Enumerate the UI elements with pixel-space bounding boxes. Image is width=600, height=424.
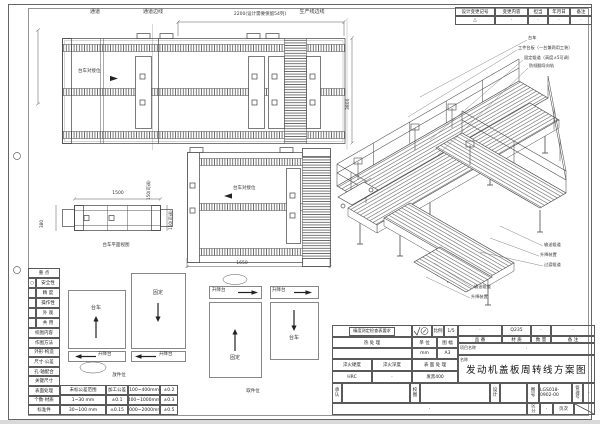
check-item: 共 用 bbox=[36, 318, 60, 328]
trolley-view-caption: 台车平面视图 bbox=[88, 244, 144, 249]
surface-treatment-label: 表 面 处 理 bbox=[412, 359, 458, 371]
trolley-side-view bbox=[56, 198, 173, 232]
tolerance-cell: 1~30 mm bbox=[60, 395, 106, 405]
project-name-label: 项目名称 bbox=[460, 345, 476, 351]
revision-header: 年月日 bbox=[548, 7, 570, 16]
revision-header: 担当 bbox=[528, 7, 548, 16]
tolerance-cell: ±0.2 bbox=[160, 385, 178, 395]
iso-view bbox=[337, 40, 566, 305]
check-mark-empty bbox=[28, 308, 36, 318]
tolerance-cell: 1000~2000mm bbox=[128, 405, 160, 415]
callout-trolley: 台车 bbox=[528, 36, 536, 41]
check-item: 个数·材质 bbox=[28, 396, 60, 406]
dim-380: 380 bbox=[40, 204, 45, 228]
callout-lifter-2: 升降装置 bbox=[471, 295, 488, 300]
note-cell: 精度测定检查表要求 bbox=[332, 325, 412, 337]
dim-3800: 3800 bbox=[347, 70, 352, 110]
flow-left-lift1-label: 升降台 bbox=[98, 353, 112, 358]
tolerance-cell: 400~1000mm bbox=[128, 395, 160, 405]
scale-value: 1/5 bbox=[444, 325, 458, 337]
heat-treatment-value bbox=[332, 348, 412, 359]
drawing-title: 发动机盖板周转线方案图 bbox=[466, 362, 587, 376]
tolerance-cell: ±0.5 bbox=[160, 405, 178, 415]
flow-right-trolley-label: 台车 bbox=[284, 336, 304, 342]
sheet-size-label: 图 幅 bbox=[437, 337, 458, 348]
approve-signature bbox=[342, 383, 410, 403]
check-mark-empty bbox=[28, 318, 36, 328]
drawing-name-label: 名称 bbox=[460, 357, 468, 363]
quench-depth-value: · bbox=[372, 371, 412, 383]
check-mark: ○ bbox=[28, 278, 36, 288]
tolerance-cell: ±0.15 bbox=[106, 405, 128, 415]
unit-label: 单 位 bbox=[412, 337, 437, 348]
label-dock-2: 台车对接位 bbox=[233, 187, 269, 192]
dock-arrow-1 bbox=[110, 76, 118, 81]
title-block: 精度测定检查表要求 比例 1/5 热 处 理 单 位 图 幅 mm A3 淬火硬… bbox=[332, 325, 595, 415]
callout-conveyor-1: 输送辊道 bbox=[544, 243, 561, 248]
check-label: 校图 bbox=[410, 383, 420, 403]
tolerance-table: 未标公差范围 加工公差 100~400mm ±0.2 1~30 mm ±0.1 … bbox=[60, 385, 178, 415]
class-label: 区分 bbox=[527, 403, 540, 415]
remark-value: · bbox=[551, 325, 595, 336]
callout-workpiece-plate: 工件台板（一台兼两用工装） bbox=[518, 46, 572, 51]
check-item: 安全性 bbox=[36, 278, 60, 288]
check-item: 关键尺寸 bbox=[28, 376, 60, 386]
manage-no-label: 管理号 bbox=[572, 383, 583, 403]
revision-table: 设计变更记号 变更内容 担当 年月日 备注 △ · · · · bbox=[455, 7, 592, 25]
heat-treatment-label: 热 处 理 bbox=[332, 337, 412, 348]
manage-no-value: · bbox=[583, 383, 595, 403]
scale-label: 比例 bbox=[432, 325, 444, 337]
label-passage-edge: 通道边线 bbox=[135, 10, 171, 16]
quantity-label: 数 量 bbox=[531, 336, 551, 343]
tolerance-cell: 加工公差 bbox=[106, 385, 128, 395]
flow-left-fixed-label: 固定 bbox=[148, 291, 168, 297]
tolerance-cell: ±0.1 bbox=[106, 395, 128, 405]
page-diagonal-cell bbox=[574, 403, 595, 415]
dim-150-plan: 150(可调) bbox=[147, 172, 152, 200]
footer-note-cell: · bbox=[332, 403, 527, 415]
flow-right-lift2-label: 升降台 bbox=[272, 289, 286, 294]
revision-cell: △ bbox=[455, 16, 495, 25]
check-item: 作图方法 bbox=[28, 338, 60, 348]
flow-left-lift2-label: 升降台 bbox=[159, 353, 173, 358]
check-signature bbox=[420, 383, 490, 403]
check-item: 孔·轴配合 bbox=[28, 367, 60, 377]
design-label: 设计 bbox=[490, 383, 500, 403]
sheet-size-value: A3 bbox=[437, 348, 458, 359]
tolerance-cell: 100~400mm bbox=[128, 385, 160, 395]
revision-cell: · bbox=[495, 16, 528, 25]
part-no-label: 品 番 bbox=[458, 336, 502, 343]
plan-view-mid bbox=[186, 148, 332, 269]
revision-header: 变更内容 bbox=[495, 7, 528, 16]
flow-right-lift1-label: 升降台 bbox=[212, 289, 226, 294]
revision-cell: · bbox=[570, 16, 592, 25]
class-value: · bbox=[540, 403, 553, 415]
check-item: 操作性 bbox=[36, 298, 60, 308]
dock-arrow-2 bbox=[224, 193, 232, 198]
drawing-name-cell: 名称 发动机盖板周转线方案图 bbox=[458, 355, 595, 383]
callout-lifter-1: 升降装置 bbox=[540, 253, 557, 258]
check-mark-empty bbox=[28, 288, 36, 298]
check-item: 标准件 bbox=[28, 405, 60, 415]
engineering-drawing-page: { "revision_table": { "headers": ["设计变更记… bbox=[0, 0, 600, 424]
unit-value: mm bbox=[412, 348, 437, 359]
callout-fixed-roller: 固定辊道（高度±5可调） bbox=[524, 56, 572, 61]
check-item: 外形·构造 bbox=[28, 348, 60, 358]
plan-view-top bbox=[36, 18, 354, 150]
label-dock-1: 台车对接位 bbox=[78, 70, 114, 75]
revision-header: 备注 bbox=[570, 7, 592, 16]
design-signature bbox=[500, 383, 527, 403]
material-label: 材 质 bbox=[502, 336, 531, 343]
material-value: Q235 bbox=[502, 325, 531, 336]
dim-1650: 1650 bbox=[220, 262, 264, 267]
label-passage: 通道 bbox=[84, 10, 106, 16]
drawing-sheet: 通道 通道边线 2200(设计需要保留54列) 生产线边线 台车对接位 台车对接… bbox=[0, 0, 600, 420]
check-item: 精 度 bbox=[36, 288, 60, 298]
dim-1500: 1500 bbox=[103, 192, 133, 197]
approve-label: 承认 bbox=[332, 383, 342, 403]
check-item: 外 观 bbox=[36, 308, 60, 318]
callout-conveyor-2: 输送辊道 bbox=[474, 285, 491, 290]
page-edge bbox=[0, 420, 600, 424]
surface-treatment-value: 发黑400 bbox=[412, 371, 458, 383]
remark-label: 备 注 bbox=[551, 336, 595, 343]
label-line-edge: 生产线边线 bbox=[292, 10, 332, 16]
quench-depth-label: 淬火深度 bbox=[372, 359, 412, 371]
tolerance-cell: 未标公差范围 bbox=[60, 385, 106, 395]
quench-hardness-value: HRC bbox=[332, 371, 372, 383]
tolerance-cell: ±0.3 bbox=[160, 395, 178, 405]
drawing-no-value: LGS018-0902-00 bbox=[539, 383, 572, 403]
project-name-cell: 项目名称 · bbox=[458, 343, 595, 355]
revision-header: 设计变更记号 bbox=[455, 7, 495, 16]
check-item: 表面处理 bbox=[28, 386, 60, 396]
tolerance-cell: 30~100 mm bbox=[60, 405, 106, 415]
revision-cell: · bbox=[528, 16, 548, 25]
surface-finish-icon bbox=[412, 325, 432, 337]
note-boxed-text: 精度测定检查表要求 bbox=[349, 327, 395, 336]
project-name-value: · bbox=[526, 347, 527, 352]
revision-cell: · bbox=[548, 16, 570, 25]
flow-left-trolley-label: 台车 bbox=[86, 306, 106, 312]
check-item: 尺寸·公差 bbox=[28, 357, 60, 367]
quench-hardness-label: 淬火硬度 bbox=[332, 359, 372, 371]
flow-left-caption: 放件位 bbox=[105, 374, 133, 379]
flow-right-caption: 取件位 bbox=[239, 390, 267, 395]
flow-right-fixed-label: 固定 bbox=[225, 356, 245, 362]
callout-transition-roller: 过渡辊道 bbox=[544, 263, 561, 268]
check-title: 重 点 bbox=[28, 268, 60, 278]
quantity-value: · bbox=[531, 325, 551, 336]
drawing-no-label: 图号 bbox=[527, 383, 539, 403]
dim-150-trolley: 150(可调) bbox=[169, 202, 174, 230]
page-label: 页次 bbox=[553, 403, 574, 415]
check-mark-empty bbox=[28, 298, 36, 308]
check-section: 校图内容 bbox=[28, 328, 60, 338]
part-no-value: · bbox=[458, 325, 502, 336]
check-table: 重 点 ○ 安全性 精 度 操作性 外 观 共 用 校图内容 作图方法 外形·构… bbox=[28, 268, 60, 415]
callout-guide-rail: 防倾翻导向轨 bbox=[529, 64, 554, 69]
